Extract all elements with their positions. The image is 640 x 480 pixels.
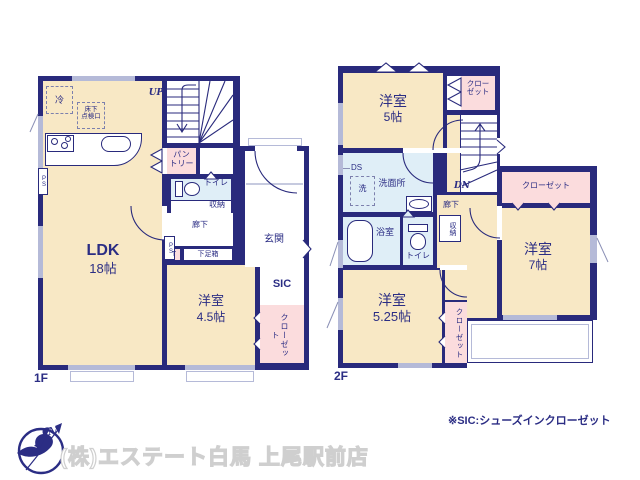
f1-toilet-label: トイレ [201,179,231,188]
f1-hatch-label: 床下 点検口 [77,106,105,121]
f2-floor-label: 2F [334,369,348,383]
f2-room5-name: 洋室 [360,94,426,110]
f2-room7-name: 洋室 [506,242,570,258]
f2-room5-size: 5帖 [360,111,426,124]
f2-stairs-exit-gap [497,138,502,154]
floorplan-canvas: LDK 18帖 洋室 4.5帖 玄関 廊下 トイレ 収納 パン トリー SIC … [0,0,640,480]
f1-window-bottom-ldk [68,365,135,370]
compass-needle [26,430,58,470]
logo-circle [19,429,63,473]
f2-washroom-label: 洗面所 [370,178,414,188]
f1-window-bottom-room45 [185,365,255,370]
f1-sic-label: SIC [263,278,301,290]
f2-closet-c-label: クローゼット [449,307,463,359]
f1-casement-mark-left [30,114,38,132]
f1-toilet-tank [175,181,183,197]
f2-ds-label: DS [351,164,369,173]
f1-burner-1 [51,138,58,145]
f2-closet-room7-label: クローゼット [514,182,578,191]
f1-genkan-door-gap [255,146,297,151]
f2-bath-label: 浴室 [372,227,398,237]
f2-casement-mark-room7 [597,238,608,262]
f1-burner-2 [61,142,68,149]
f1-sink [101,136,131,152]
f1-porch-step [248,138,302,146]
f2-window-bottom [398,363,432,368]
f1-ps-left-label: PS [39,171,47,193]
f1-window-left-lower [38,226,43,278]
f1-floor-label: 1F [34,371,48,385]
f1-up-label: UP [146,88,166,98]
f2-toilet-tank [408,224,428,232]
f1-pantry-label: パン トリー [167,151,196,169]
f2-window-left-washroom [338,155,343,175]
f2-window-right-room7 [590,235,597,263]
f1-shuno-label: 収納 [203,201,231,210]
f2-room525-name: 洋室 [356,293,428,309]
f1-ldk-door-gap [162,206,167,240]
f1-burner-3 [65,136,71,142]
bird-wing-icon [34,432,48,448]
f2-room7-size: 7帖 [506,259,570,272]
f2-closet-top-doors [447,76,461,110]
f1-genkan [245,151,304,267]
f1-room45-size: 4.5帖 [176,311,246,324]
f2-doors-gap-hallwall [403,148,461,153]
f1-fridge-label: 冷 [46,95,73,105]
f2-closet-c-access [445,268,467,300]
f1-toilet-bowl [184,182,200,196]
f1-ps-hall-label: PS [166,239,174,259]
f1-shoe-box-label: 下足箱 [183,251,233,259]
f2-washer-label: 洗 [350,185,375,194]
f1-window-left-upper [38,116,43,168]
sic-footnote: ※SIC:シューズインクローゼット [448,412,611,428]
f2-toilet-label: トイレ [402,252,434,261]
bird-icon [17,427,53,456]
f2-room7-door-gap [497,206,502,240]
compass-n-label: N [47,425,58,438]
f1-window-top [72,76,135,81]
f2-closet-top-label: クロー ゼット [463,80,493,97]
f1-genkan-step-line [246,183,303,185]
f2-hall-label: 廊下 [438,201,464,210]
company-name: (株)エステート白馬 上尾駅前店 [60,441,369,471]
f1-ldk-name: LDK [63,242,143,260]
compass-needle-tip [55,423,62,434]
f1-sill-right [186,371,254,382]
f1-ldk-size: 18帖 [63,262,143,277]
f1-room45-name: 洋室 [176,294,246,309]
f2-toilet-bowl [410,233,426,250]
f2-window-balcony [503,315,557,320]
f1-stairs [167,81,233,143]
f2-ds-tick [343,168,350,169]
f2-window-left-bath [338,240,343,268]
f2-bathtub [347,220,373,262]
f2-shuno-label: 収納 [444,218,456,240]
f2-casement-mark-bath [330,242,338,266]
f1-sill-left [70,371,134,382]
f2-window-left-room525 [338,298,343,330]
f2-basin-bowl [409,199,429,209]
f2-room525-size: 5.25帖 [356,310,428,325]
f2-room525-door-gap [440,265,467,270]
f1-genkan-label: 玄関 [251,234,297,245]
f2-window-left-room5 [338,103,343,145]
f1-closet-label: クローゼット [274,309,288,361]
f1-hall-label: 廊下 [187,221,213,230]
f2-dn-label: DN [452,181,472,191]
f1-understair-storage [200,148,233,174]
f2-casement-mark-525 [327,302,338,328]
f2-balcony-inner-line [471,324,589,359]
f2-hall-lower [467,268,497,318]
